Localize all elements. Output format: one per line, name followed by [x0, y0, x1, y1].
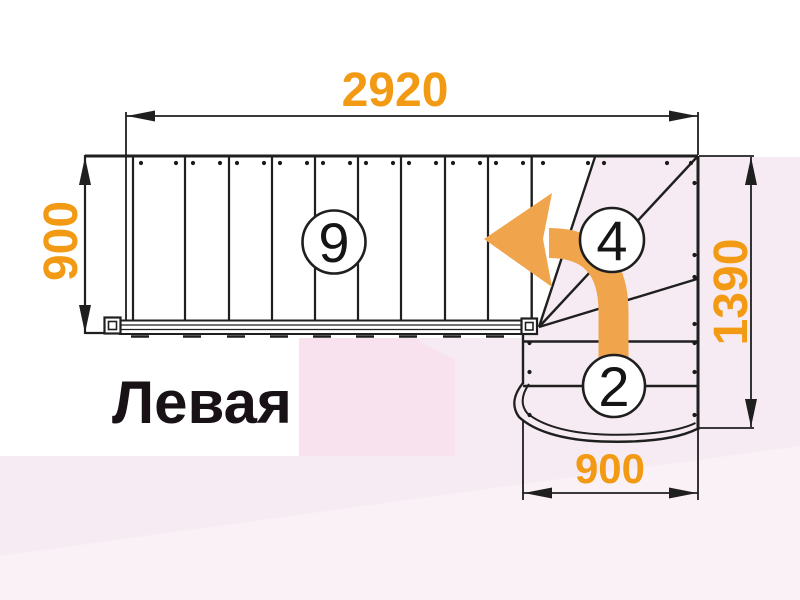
dimension-right-value: 1390 [705, 239, 758, 346]
drawing-title: Левая [112, 369, 292, 436]
straight-flight-count: 9 [318, 211, 349, 274]
dimension-left-value: 900 [35, 201, 88, 281]
stringer-band [120, 321, 522, 335]
dimension-top-value: 2920 [342, 64, 449, 117]
bottom-flight-count: 2 [598, 355, 629, 418]
background-rose-block [299, 338, 455, 456]
newel-post-left [105, 318, 121, 334]
stair-plan-drawing: 9 4 2 2920 900 1390 900 Левая [0, 0, 800, 600]
winder-step-count: 4 [596, 209, 627, 272]
stair-plan-svg: 9 4 2 2920 900 1390 900 Левая [0, 0, 800, 600]
newel-post-winder [522, 319, 538, 335]
dimension-bottom-value: 900 [575, 445, 645, 492]
